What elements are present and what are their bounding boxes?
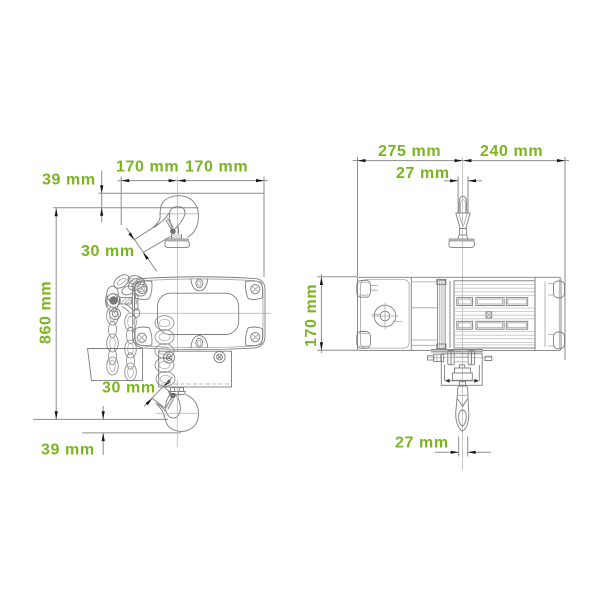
- svg-text:30 mm: 30 mm: [102, 379, 156, 396]
- svg-text:170 mm: 170 mm: [185, 158, 248, 175]
- svg-text:275 mm: 275 mm: [378, 143, 441, 160]
- svg-text:240 mm: 240 mm: [480, 143, 543, 160]
- svg-text:170 mm: 170 mm: [116, 158, 179, 175]
- svg-text:860 mm: 860 mm: [38, 281, 55, 344]
- svg-text:39 mm: 39 mm: [42, 172, 96, 189]
- svg-text:39 mm: 39 mm: [41, 442, 95, 459]
- svg-text:30 mm: 30 mm: [81, 243, 135, 260]
- svg-text:27 mm: 27 mm: [395, 434, 449, 451]
- svg-text:27 mm: 27 mm: [396, 165, 450, 182]
- svg-text:170 mm: 170 mm: [303, 284, 320, 347]
